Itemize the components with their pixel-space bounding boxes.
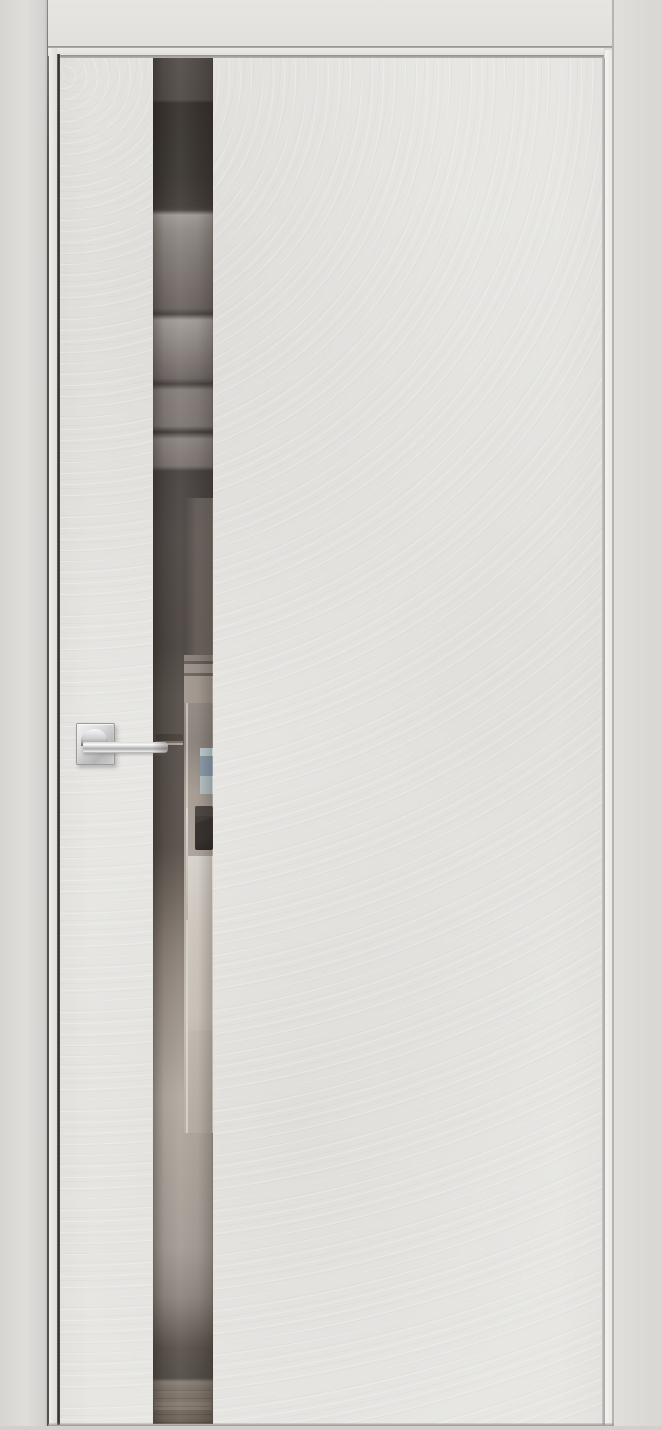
mirror-insert: [153, 58, 213, 1424]
mirror-reflection-door-edge: [186, 703, 188, 1133]
mirror-reflection-wood-floor: [154, 1390, 212, 1424]
mirror-reflection-doorway: [184, 703, 213, 1133]
handle-lever-tip: [152, 742, 168, 753]
frame-casing-right: [614, 0, 662, 1430]
mirror-reflection-sofa: [195, 806, 213, 850]
mirror-reflection-bright-edge: [186, 808, 188, 920]
floor-strip: [0, 1426, 662, 1430]
frame-casing-top: [48, 0, 613, 46]
frame-jamb-right: [605, 50, 612, 1430]
frame-jamb-left: [49, 48, 57, 1425]
door-slab: [60, 58, 602, 1424]
mirror-reflection-window: [200, 748, 213, 794]
mirror-reflection-doorway-header: [184, 655, 213, 703]
handle-lever: [83, 742, 168, 753]
frame-casing-left: [0, 0, 48, 1430]
mirror-sheen-overlay: [154, 58, 212, 1424]
mirror-reflection-wall: [185, 498, 213, 658]
door-product-photo: [0, 0, 662, 1430]
mirror-reflection-floor-glow: [188, 856, 213, 1031]
